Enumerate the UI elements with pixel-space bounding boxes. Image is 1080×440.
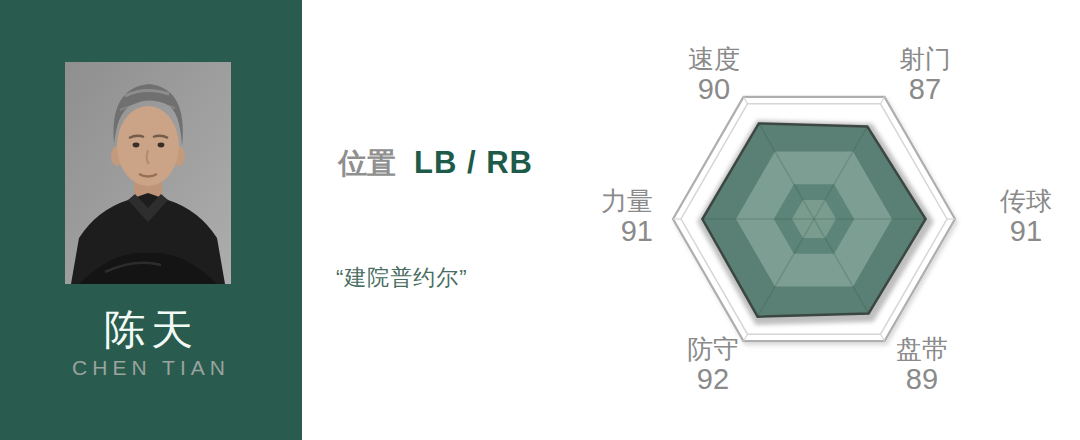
stat-strength-label: 力量	[543, 186, 653, 216]
stat-speed-value: 90	[654, 74, 774, 104]
stat-speed: 速度 90	[654, 44, 774, 104]
stat-shooting: 射门 87	[865, 44, 985, 104]
stat-passing: 传球 91	[966, 186, 1080, 246]
radar-chart: 速度 90 射门 87 传球 91 盘带 89 防守 92 力量 91	[0, 0, 1080, 440]
stat-strength: 力量 91	[543, 186, 653, 246]
stat-defense: 防守 92	[653, 334, 773, 394]
stat-dribbling-value: 89	[862, 364, 982, 394]
player-card: 陈天 CHEN TIAN 位置 LB / RB “建院普约尔” 速度 90 射门	[0, 0, 1080, 440]
stat-speed-label: 速度	[654, 44, 774, 74]
stat-dribbling-label: 盘带	[862, 334, 982, 364]
stat-defense-value: 92	[653, 364, 773, 394]
stat-defense-label: 防守	[653, 334, 773, 364]
stat-shooting-label: 射门	[865, 44, 985, 74]
stat-passing-value: 91	[966, 216, 1080, 246]
stat-dribbling: 盘带 89	[862, 334, 982, 394]
stat-shooting-value: 87	[865, 74, 985, 104]
stat-passing-label: 传球	[966, 186, 1080, 216]
stat-strength-value: 91	[543, 216, 653, 246]
